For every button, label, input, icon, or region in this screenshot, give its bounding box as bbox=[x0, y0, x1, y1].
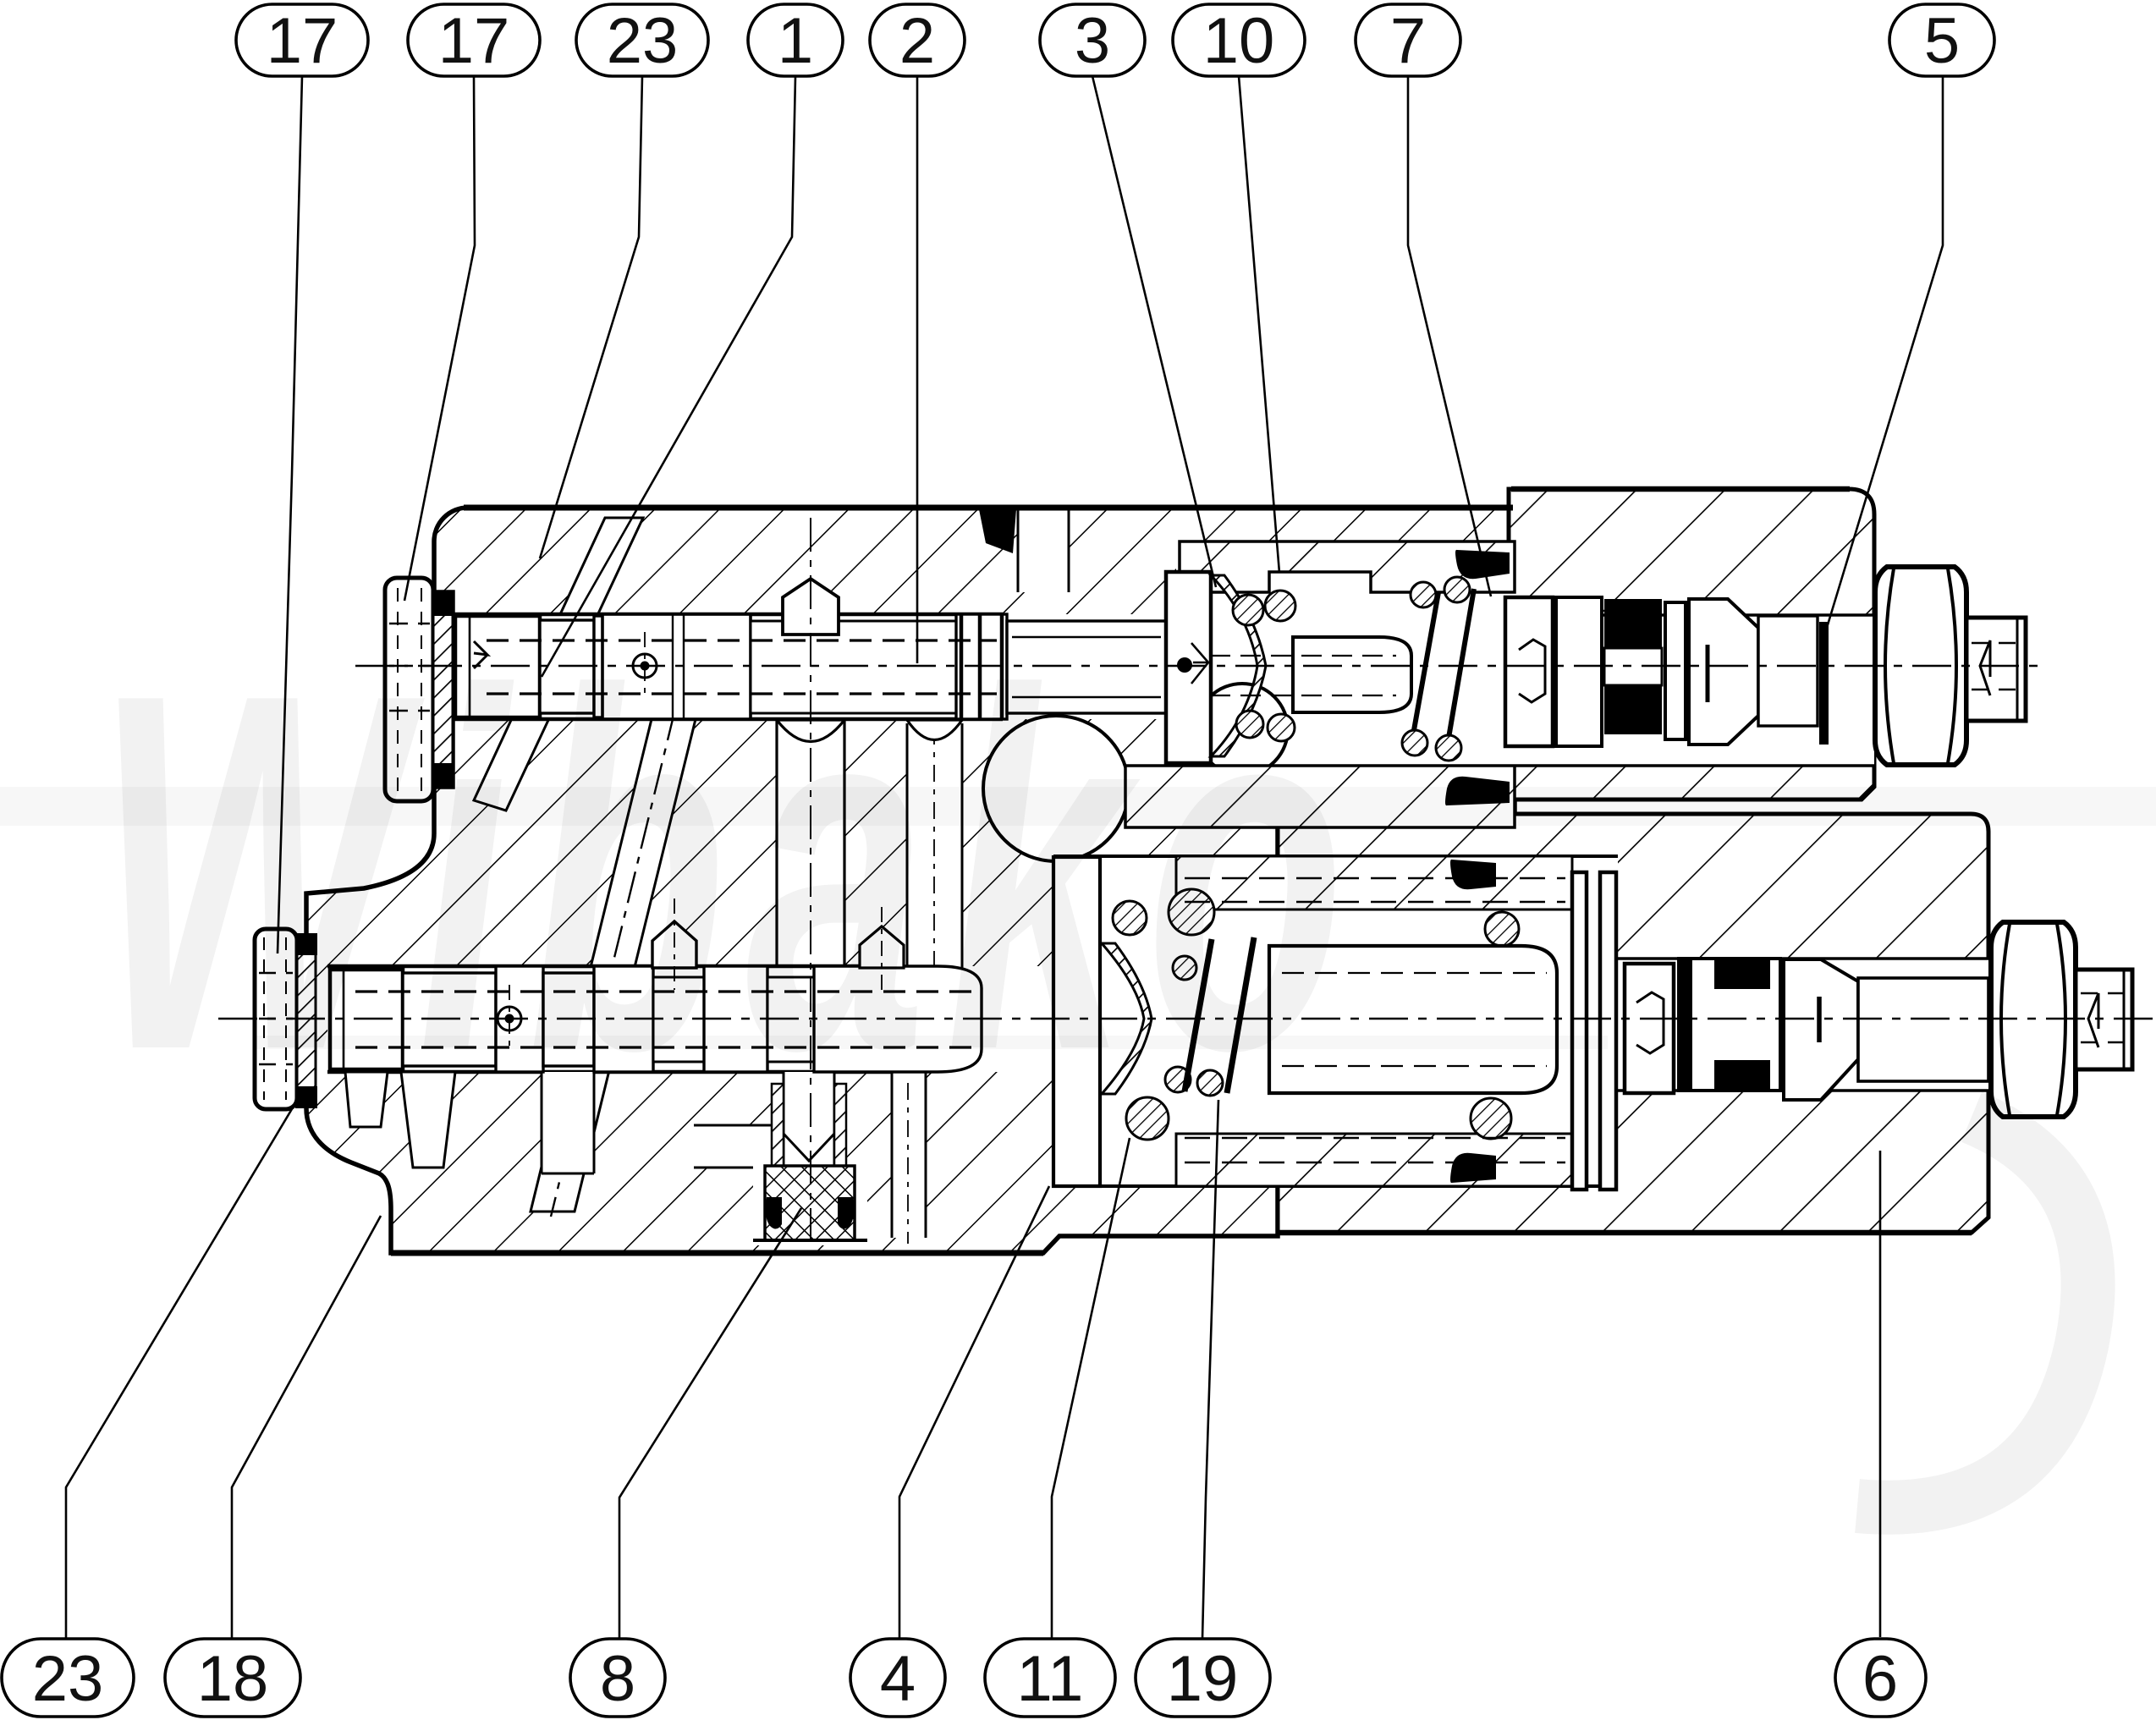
svg-text:23: 23 bbox=[607, 5, 679, 77]
svg-text:17: 17 bbox=[438, 5, 510, 77]
svg-text:2: 2 bbox=[899, 5, 935, 77]
svg-text:10: 10 bbox=[1203, 5, 1275, 77]
svg-text:8: 8 bbox=[600, 1643, 635, 1715]
svg-text:7: 7 bbox=[1390, 5, 1426, 77]
svg-text:3: 3 bbox=[1075, 5, 1110, 77]
svg-text:18: 18 bbox=[197, 1643, 269, 1715]
svg-text:1: 1 bbox=[778, 5, 813, 77]
svg-text:23: 23 bbox=[32, 1643, 104, 1715]
svg-text:6: 6 bbox=[1862, 1643, 1898, 1715]
svg-text:17: 17 bbox=[267, 5, 338, 77]
svg-text:5: 5 bbox=[1924, 5, 1960, 77]
svg-text:19: 19 bbox=[1167, 1643, 1239, 1715]
svg-text:11: 11 bbox=[1017, 1643, 1084, 1715]
svg-text:4: 4 bbox=[880, 1643, 916, 1715]
